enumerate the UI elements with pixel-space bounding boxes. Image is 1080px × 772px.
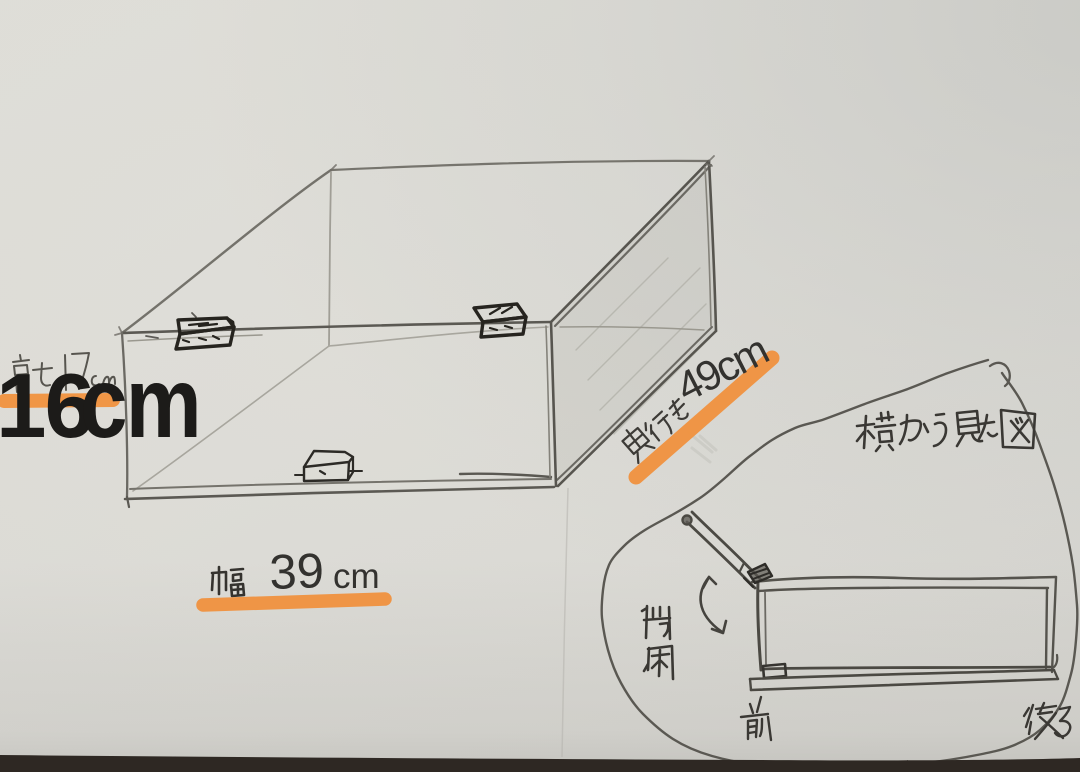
- svg-text:cm: cm: [333, 557, 380, 596]
- svg-text:cm: cm: [80, 347, 200, 459]
- svg-text:39: 39: [268, 544, 324, 600]
